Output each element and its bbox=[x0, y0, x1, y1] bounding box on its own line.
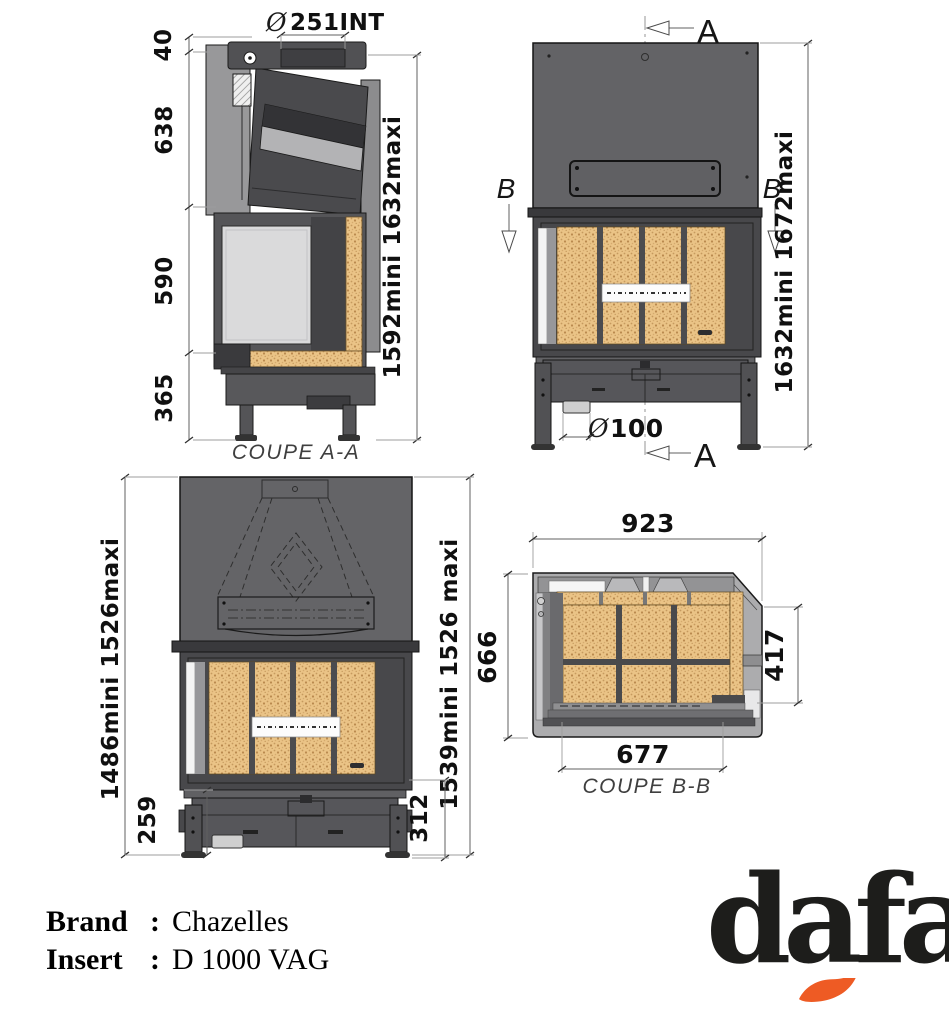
brand-row: Brand : Chazelles bbox=[46, 903, 329, 941]
dim-height-top: 40 bbox=[151, 28, 177, 61]
brand-value: Chazelles bbox=[172, 903, 289, 941]
section-label-a-bottom: A bbox=[694, 437, 716, 474]
section-arrow-a-top bbox=[647, 21, 669, 35]
view-coupe-aa: 40 638 590 365 1592mini 1632maxi Ø 251IN… bbox=[151, 8, 421, 464]
section-arrow-b-left bbox=[502, 231, 516, 252]
dim-plan-interior-width: 677 bbox=[616, 740, 670, 769]
leg bbox=[185, 805, 202, 852]
insert-value: D 1000 VAG bbox=[172, 941, 329, 979]
dim-plan-depth: 666 bbox=[473, 630, 502, 684]
dim-height-left: 1486mini 1526maxi bbox=[98, 538, 124, 801]
caption-coupe-bb: COUPE B-B bbox=[582, 775, 711, 798]
dim-base-right: 312 bbox=[407, 793, 433, 843]
insert-row: Insert : D 1000 VAG bbox=[46, 941, 329, 979]
dim-base-left: 259 bbox=[135, 795, 161, 845]
hood-front-lower bbox=[180, 477, 412, 645]
maker-mark bbox=[698, 330, 712, 335]
product-info: Brand : Chazelles Insert : D 1000 VAG bbox=[46, 903, 329, 979]
caption-coupe-aa: COUPE A-A bbox=[232, 441, 360, 464]
view-front-lower: 1486mini 1526maxi 259 1539mini 1526 maxi… bbox=[98, 474, 474, 861]
dim-overall-height-aa: 1592mini 1632maxi bbox=[380, 116, 406, 379]
leg bbox=[240, 405, 253, 435]
dim-flue-diameter: 251INT bbox=[290, 10, 385, 36]
insert-label: Insert bbox=[46, 941, 150, 979]
dim-height-base: 365 bbox=[152, 373, 178, 423]
dim-air-inlet: 100 bbox=[610, 414, 664, 443]
brand-label: Brand bbox=[46, 903, 150, 941]
air-inlet-stub bbox=[212, 835, 243, 848]
mantel-lip bbox=[528, 208, 762, 217]
leg bbox=[390, 805, 407, 852]
firebrick-floor bbox=[250, 351, 362, 367]
flame-icon bbox=[798, 978, 860, 1002]
hinge-pin bbox=[538, 598, 545, 605]
diameter-symbol: Ø bbox=[587, 414, 609, 443]
glass-door-side bbox=[222, 226, 311, 344]
insert-colon: : bbox=[150, 941, 172, 979]
dim-height-upper: 638 bbox=[152, 105, 178, 155]
door-sill-mechanism bbox=[214, 344, 250, 369]
section-label-a-top: A bbox=[697, 13, 719, 50]
foot bbox=[181, 852, 206, 858]
section-arrow-a-bottom bbox=[647, 446, 669, 460]
flue-collar bbox=[281, 49, 345, 67]
leg bbox=[535, 363, 551, 445]
brand-colon: : bbox=[150, 903, 172, 941]
base-plinth-side bbox=[226, 374, 375, 405]
dim-overall-height-front: 1632mini 1672maxi bbox=[772, 131, 798, 394]
dim-plan-width: 923 bbox=[621, 509, 675, 538]
glass-reflection bbox=[186, 662, 195, 774]
dafa-wordmark: dafa bbox=[706, 858, 946, 980]
dim-height-door: 590 bbox=[152, 256, 178, 306]
side-back-casing bbox=[206, 45, 250, 215]
datasheet-page: 40 638 590 365 1592mini 1632maxi Ø 251IN… bbox=[0, 0, 949, 1024]
insulation-hatch bbox=[233, 74, 251, 106]
glass-reflection bbox=[538, 228, 547, 344]
view-front-upper: A A B B 1632mini 1672maxi Ø 100 bbox=[497, 13, 812, 474]
view-coupe-bb: 923 666 417 677 COUPE B-B bbox=[473, 509, 803, 798]
door-jamb bbox=[195, 662, 205, 774]
section-label-b-left: B bbox=[497, 173, 516, 204]
dafa-logo: dafa bbox=[706, 858, 946, 1018]
door-jamb bbox=[547, 228, 556, 344]
foot bbox=[531, 444, 555, 450]
foot bbox=[737, 444, 761, 450]
firebrick-back bbox=[346, 217, 362, 351]
air-inlet-stub bbox=[563, 401, 590, 413]
dim-height-right: 1539mini 1526 maxi bbox=[437, 538, 463, 809]
dim-plan-interior-depth: 417 bbox=[760, 628, 789, 682]
mantel-lip-lower bbox=[172, 641, 419, 652]
maker-mark bbox=[350, 763, 364, 768]
leg bbox=[741, 363, 757, 445]
firebox-cavity bbox=[311, 217, 346, 351]
hood-vent bbox=[570, 161, 720, 196]
foot bbox=[385, 852, 410, 858]
leg bbox=[343, 405, 356, 435]
